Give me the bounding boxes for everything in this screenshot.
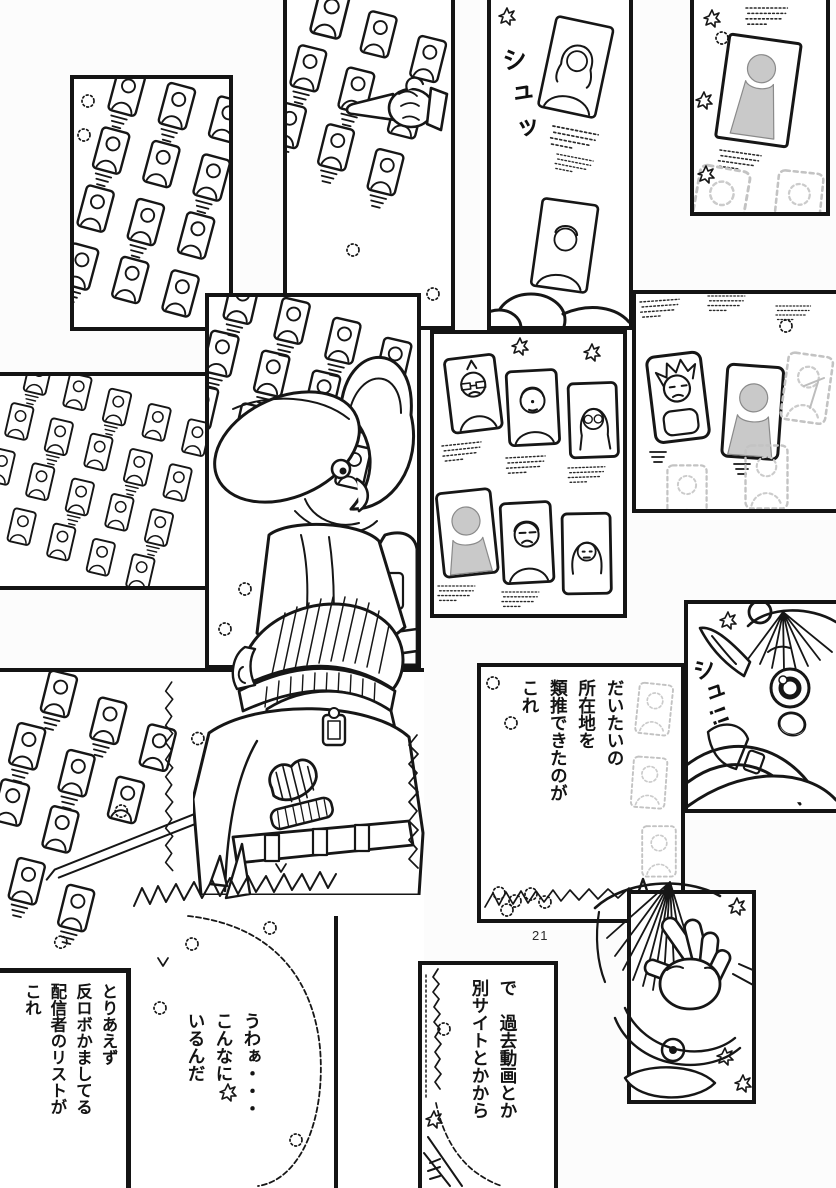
burst-mark-icon (704, 10, 720, 27)
caption-dots-icon (708, 296, 745, 310)
panel-photo-wall-mid-left (0, 372, 209, 590)
panel-excited-girl: シュ!! (684, 600, 836, 813)
caption-dots-icon (776, 306, 811, 320)
panel-cards-mid-right (632, 290, 836, 513)
burst-mark-icon (426, 1111, 442, 1128)
fluff-mark-icon (82, 95, 94, 107)
manga-page: シュッ (0, 0, 836, 1188)
panel-speech-sites: で 過去動画とか 別サイトとかから (418, 961, 558, 1188)
profile-card-frown-icon (500, 501, 554, 584)
panel-photo-wall-top-mid (283, 0, 455, 330)
caption-dash-icon (650, 452, 666, 462)
burst-mark-icon (696, 92, 712, 109)
burst-mark-icon (729, 898, 745, 915)
speech-deduce-location-text: だいたいの 所在地を 類推できたのが これ (499, 679, 629, 897)
caption-dots-icon (568, 467, 605, 483)
burst-mark-icon (735, 1075, 751, 1092)
profile-card-longhair-icon (562, 513, 611, 594)
profile-card-grid-icon (0, 376, 209, 586)
bubble-scribble-edge-icon (433, 969, 441, 1089)
silhouette-card-art (694, 0, 826, 212)
bystander-head-icon (491, 294, 629, 326)
profile-card-glasses-woman-icon (568, 382, 619, 458)
panel-big-cards (430, 330, 627, 618)
fluff-mark-icon (347, 244, 359, 256)
profile-card-woman-icon (538, 16, 614, 118)
panel-speech-list: とりあえず 反ロボかましてる 配信者のリストが これ (0, 968, 131, 1188)
caption-dots-icon (438, 586, 475, 600)
fluff-mark-icon (78, 129, 90, 141)
head-side-icon (233, 647, 255, 689)
profile-card-grid-icon (74, 79, 229, 327)
speech-streamer-list-text: とりあえず 反ロボかましてる 配信者のリストが これ (2, 983, 120, 1185)
grass-icon (134, 844, 336, 906)
faint-card-icon (772, 170, 824, 212)
profile-card-glasses-man-icon (444, 354, 503, 434)
page-number: 21 (532, 928, 548, 943)
girl-body-swoosh-icon (688, 725, 836, 809)
faint-card-icon (667, 465, 706, 509)
caption-dots-icon (554, 154, 593, 175)
profile-card-man-icon (531, 198, 599, 293)
speech-so-many-text: うわぁ・・・ こんなに いるんだ (180, 1012, 266, 1184)
anonymous-profile-card-icon (716, 34, 802, 147)
faint-card-icon (780, 352, 834, 425)
faint-scribble-icon (804, 378, 824, 408)
burst-mark-icon (584, 344, 600, 361)
fluff-mark-icon (427, 288, 439, 300)
panel-silhouette-card (690, 0, 830, 216)
fluff-mark-icon (154, 1002, 166, 1014)
mi-marks-icon (428, 1159, 440, 1179)
burst-mark-icon (720, 612, 736, 629)
faint-card-icon (642, 826, 676, 876)
caption-dash-icon (734, 464, 750, 474)
grabbing-hand-icon (643, 915, 755, 1009)
fluff-mark-icon (716, 32, 728, 44)
caption-dots-icon (640, 299, 680, 317)
fluff-mark-icon (780, 320, 792, 332)
photo-wall-art (0, 376, 209, 586)
speech-other-sites-text: で 過去動画とか 別サイトとかから (450, 979, 522, 1169)
caption-dots-icon (502, 592, 539, 606)
panel-whoosh-cards: シュッ (487, 0, 633, 330)
profile-card-silhouette-icon (436, 488, 498, 577)
grabbed-girl-art (555, 878, 755, 1108)
caption-dots-icon (550, 126, 599, 152)
photo-wall-art (74, 79, 229, 327)
profile-card-spiky-kid-icon (646, 351, 710, 443)
caption-dots-icon (746, 8, 787, 24)
burst-mark-icon (512, 338, 528, 355)
profile-card-plain-icon (506, 369, 560, 446)
photo-wall-hand-art (287, 0, 451, 326)
fluff-mark-icon (290, 1134, 302, 1146)
caption-dots-icon (506, 456, 546, 473)
fluff-mark-icon (186, 938, 198, 950)
burst-mark-icon (499, 8, 515, 25)
faint-card-icon (631, 756, 668, 809)
fluff-mark-icon (487, 677, 499, 689)
caption-dots-icon (718, 150, 761, 172)
caption-dots-icon (442, 442, 482, 461)
big-cards-art (434, 334, 623, 614)
goggle-eye-icon (615, 1008, 740, 1097)
cards-art (636, 294, 836, 509)
faint-card-icon (635, 682, 674, 736)
fluff-mark-icon (264, 922, 276, 934)
